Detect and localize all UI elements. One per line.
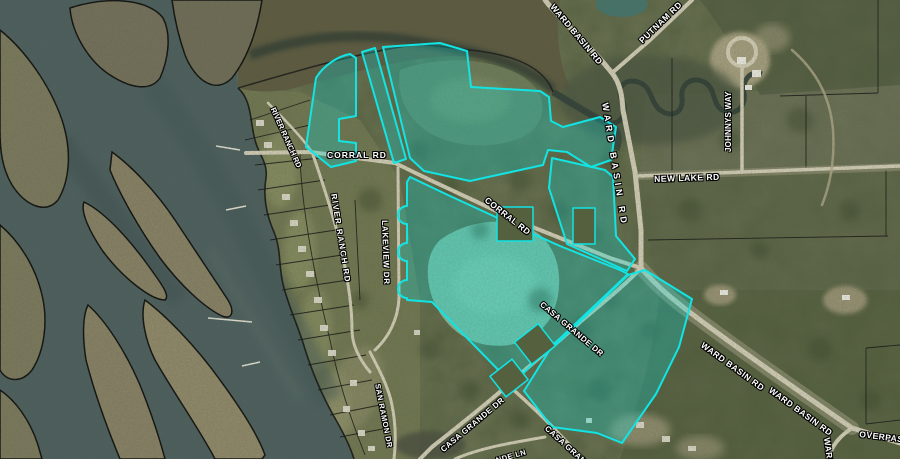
aerial-basemap — [0, 0, 900, 459]
road-label-johnnys-way: JOHNNYS WAY — [724, 91, 733, 152]
map-canvas[interactable]: WARD BASIN RD PUTNAM RD JOHNNYS WAY WARD… — [0, 0, 900, 459]
road-label-corral-west: CORRAL RD — [327, 150, 387, 160]
